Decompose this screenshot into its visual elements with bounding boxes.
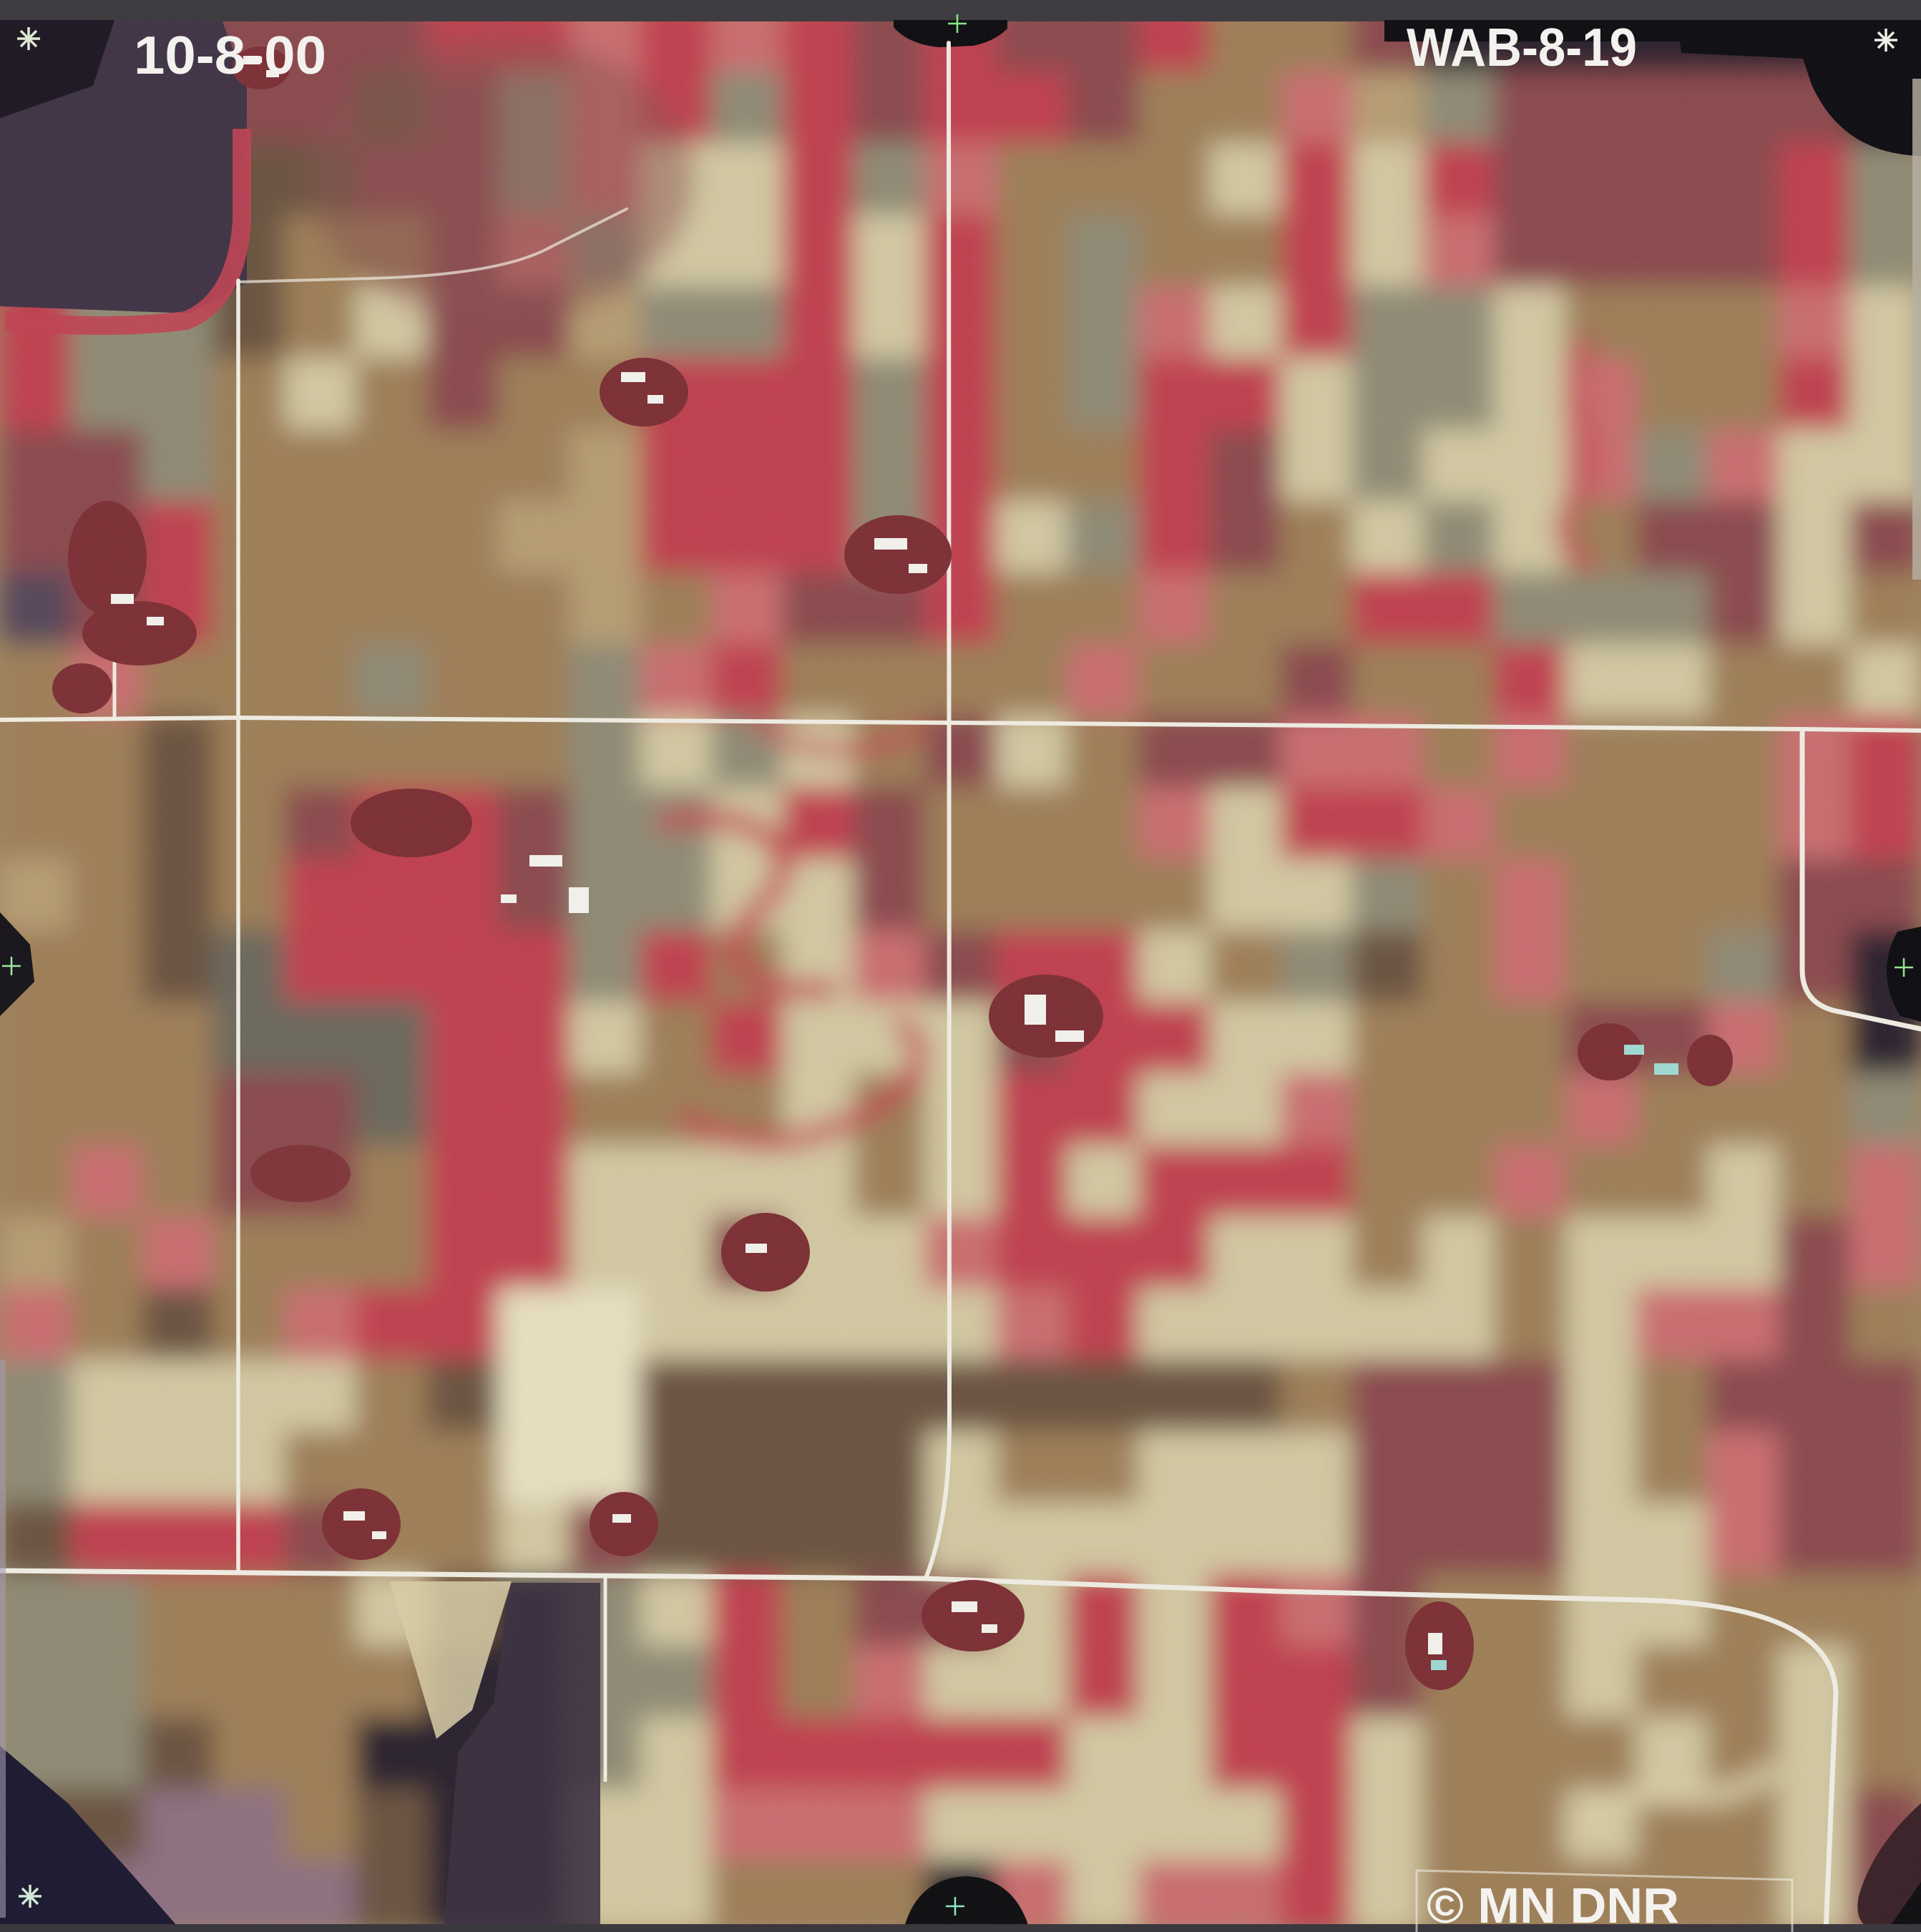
svg-text:10-8-00: 10-8-00: [134, 25, 326, 85]
svg-text:WAB-8-19: WAB-8-19: [1407, 17, 1637, 77]
svg-text:© MN DNR: © MN DNR: [1427, 1878, 1679, 1932]
